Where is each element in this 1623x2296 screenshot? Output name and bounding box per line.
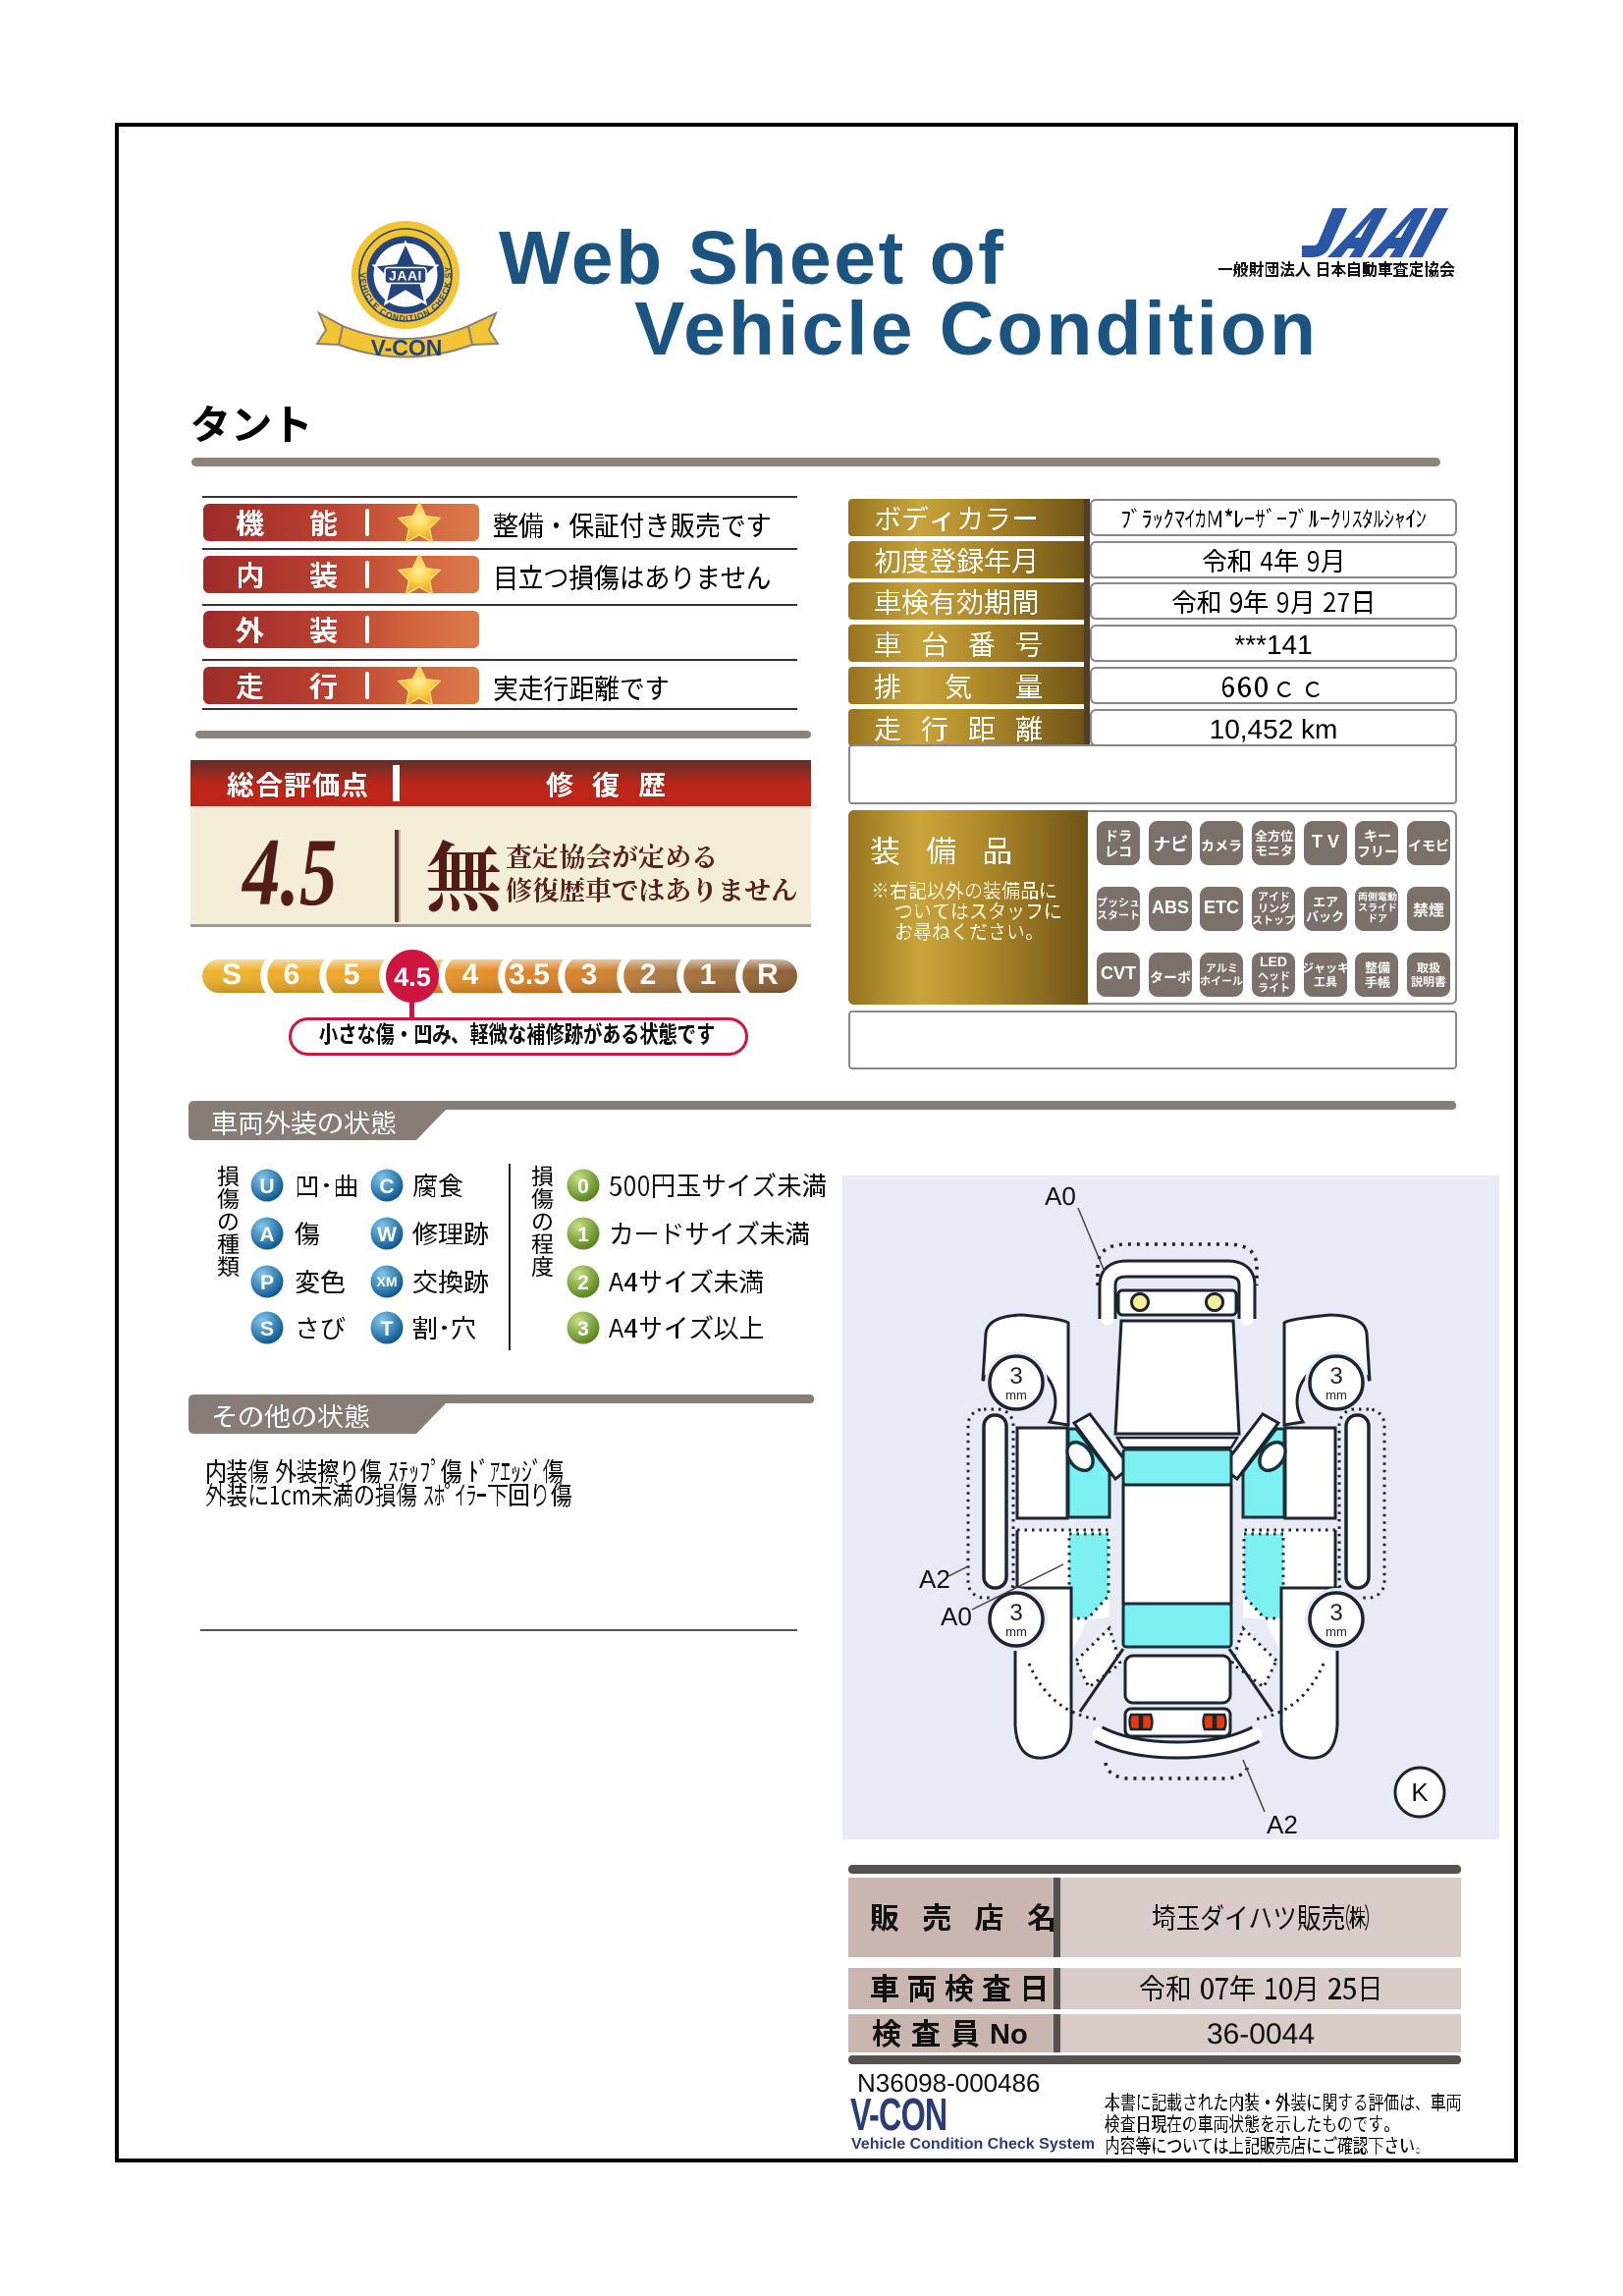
svg-text:mm: mm: [1325, 1388, 1347, 1402]
svg-text:0: 0: [577, 1175, 589, 1198]
svg-text:1: 1: [700, 959, 717, 991]
svg-text:3: 3: [1329, 1363, 1342, 1390]
svg-text:K: K: [1411, 1777, 1429, 1807]
svg-text:W: W: [377, 1224, 397, 1246]
svg-text:A0: A0: [941, 1602, 972, 1631]
svg-text:mm: mm: [1005, 1624, 1027, 1639]
svg-text:T: T: [381, 1318, 394, 1340]
svg-text:V-CON: V-CON: [371, 335, 443, 360]
svg-text:5: 5: [344, 959, 360, 991]
svg-text:3: 3: [1009, 1363, 1022, 1390]
svg-text:mm: mm: [1005, 1388, 1027, 1402]
svg-text:A2: A2: [919, 1564, 950, 1594]
svg-text:P: P: [260, 1272, 274, 1294]
svg-text:3: 3: [581, 959, 598, 991]
svg-text:XM: XM: [377, 1274, 398, 1289]
svg-text:6: 6: [284, 959, 300, 991]
svg-text:A0: A0: [1045, 1181, 1076, 1211]
svg-text:JAAI: JAAI: [389, 268, 422, 284]
svg-text:1: 1: [577, 1224, 589, 1246]
svg-text:3: 3: [1009, 1600, 1022, 1626]
svg-text:C: C: [379, 1175, 394, 1198]
svg-text:3: 3: [1329, 1600, 1342, 1626]
svg-text:3.5: 3.5: [509, 959, 550, 991]
svg-text:2: 2: [577, 1272, 589, 1294]
svg-text:mm: mm: [1325, 1624, 1347, 1639]
svg-text:A2: A2: [1267, 1810, 1298, 1839]
svg-text:3: 3: [577, 1318, 589, 1340]
svg-text:4: 4: [462, 959, 479, 991]
svg-text:2: 2: [640, 959, 657, 991]
svg-text:A: A: [259, 1224, 274, 1246]
svg-text:R: R: [757, 959, 779, 991]
svg-text:4.5: 4.5: [394, 962, 431, 992]
svg-text:S: S: [260, 1318, 274, 1340]
svg-text:U: U: [259, 1175, 274, 1198]
svg-text:S: S: [222, 959, 242, 991]
